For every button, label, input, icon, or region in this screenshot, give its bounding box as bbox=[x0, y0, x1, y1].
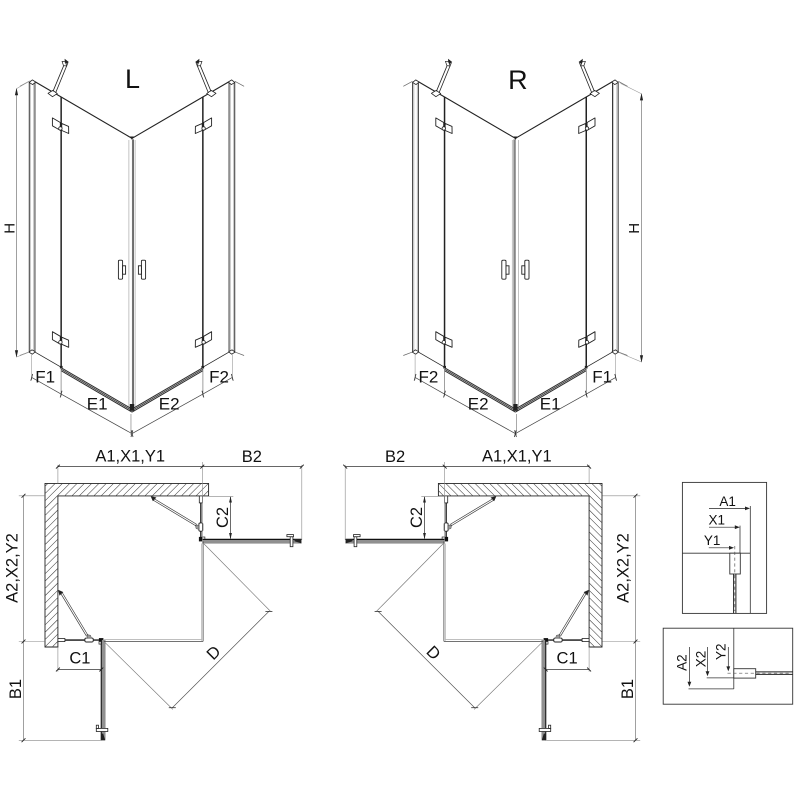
svg-text:E2: E2 bbox=[468, 395, 489, 414]
svg-text:B1: B1 bbox=[619, 679, 637, 699]
svg-text:A2,X2,Y2: A2,X2,Y2 bbox=[615, 533, 633, 603]
svg-text:E1: E1 bbox=[540, 395, 561, 414]
svg-text:A1,X1,Y1: A1,X1,Y1 bbox=[482, 448, 552, 466]
svg-text:A1: A1 bbox=[719, 494, 736, 509]
svg-text:H: H bbox=[626, 223, 643, 234]
svg-text:B2: B2 bbox=[385, 448, 405, 466]
svg-text:A2,X2,Y2: A2,X2,Y2 bbox=[4, 533, 22, 603]
svg-text:B2: B2 bbox=[242, 448, 262, 466]
svg-text:F2: F2 bbox=[209, 368, 229, 387]
svg-text:X1: X1 bbox=[709, 512, 726, 527]
svg-text:R: R bbox=[508, 65, 528, 95]
svg-text:A1,X1,Y1: A1,X1,Y1 bbox=[95, 448, 165, 466]
svg-text:F2: F2 bbox=[418, 368, 438, 387]
svg-text:E2: E2 bbox=[159, 395, 180, 414]
svg-text:X2: X2 bbox=[694, 651, 709, 668]
svg-text:F1: F1 bbox=[35, 368, 55, 387]
svg-text:Y2: Y2 bbox=[714, 643, 729, 660]
svg-text:C1: C1 bbox=[557, 650, 578, 668]
svg-text:C2: C2 bbox=[214, 507, 232, 528]
svg-text:E1: E1 bbox=[87, 395, 108, 414]
svg-text:Y1: Y1 bbox=[704, 533, 721, 548]
svg-text:H: H bbox=[2, 223, 19, 234]
svg-text:C1: C1 bbox=[69, 650, 90, 668]
svg-text:C2: C2 bbox=[408, 507, 426, 528]
svg-text:F1: F1 bbox=[592, 368, 612, 387]
svg-text:A2: A2 bbox=[675, 654, 690, 671]
svg-text:L: L bbox=[125, 64, 140, 94]
svg-text:B1: B1 bbox=[7, 679, 25, 699]
